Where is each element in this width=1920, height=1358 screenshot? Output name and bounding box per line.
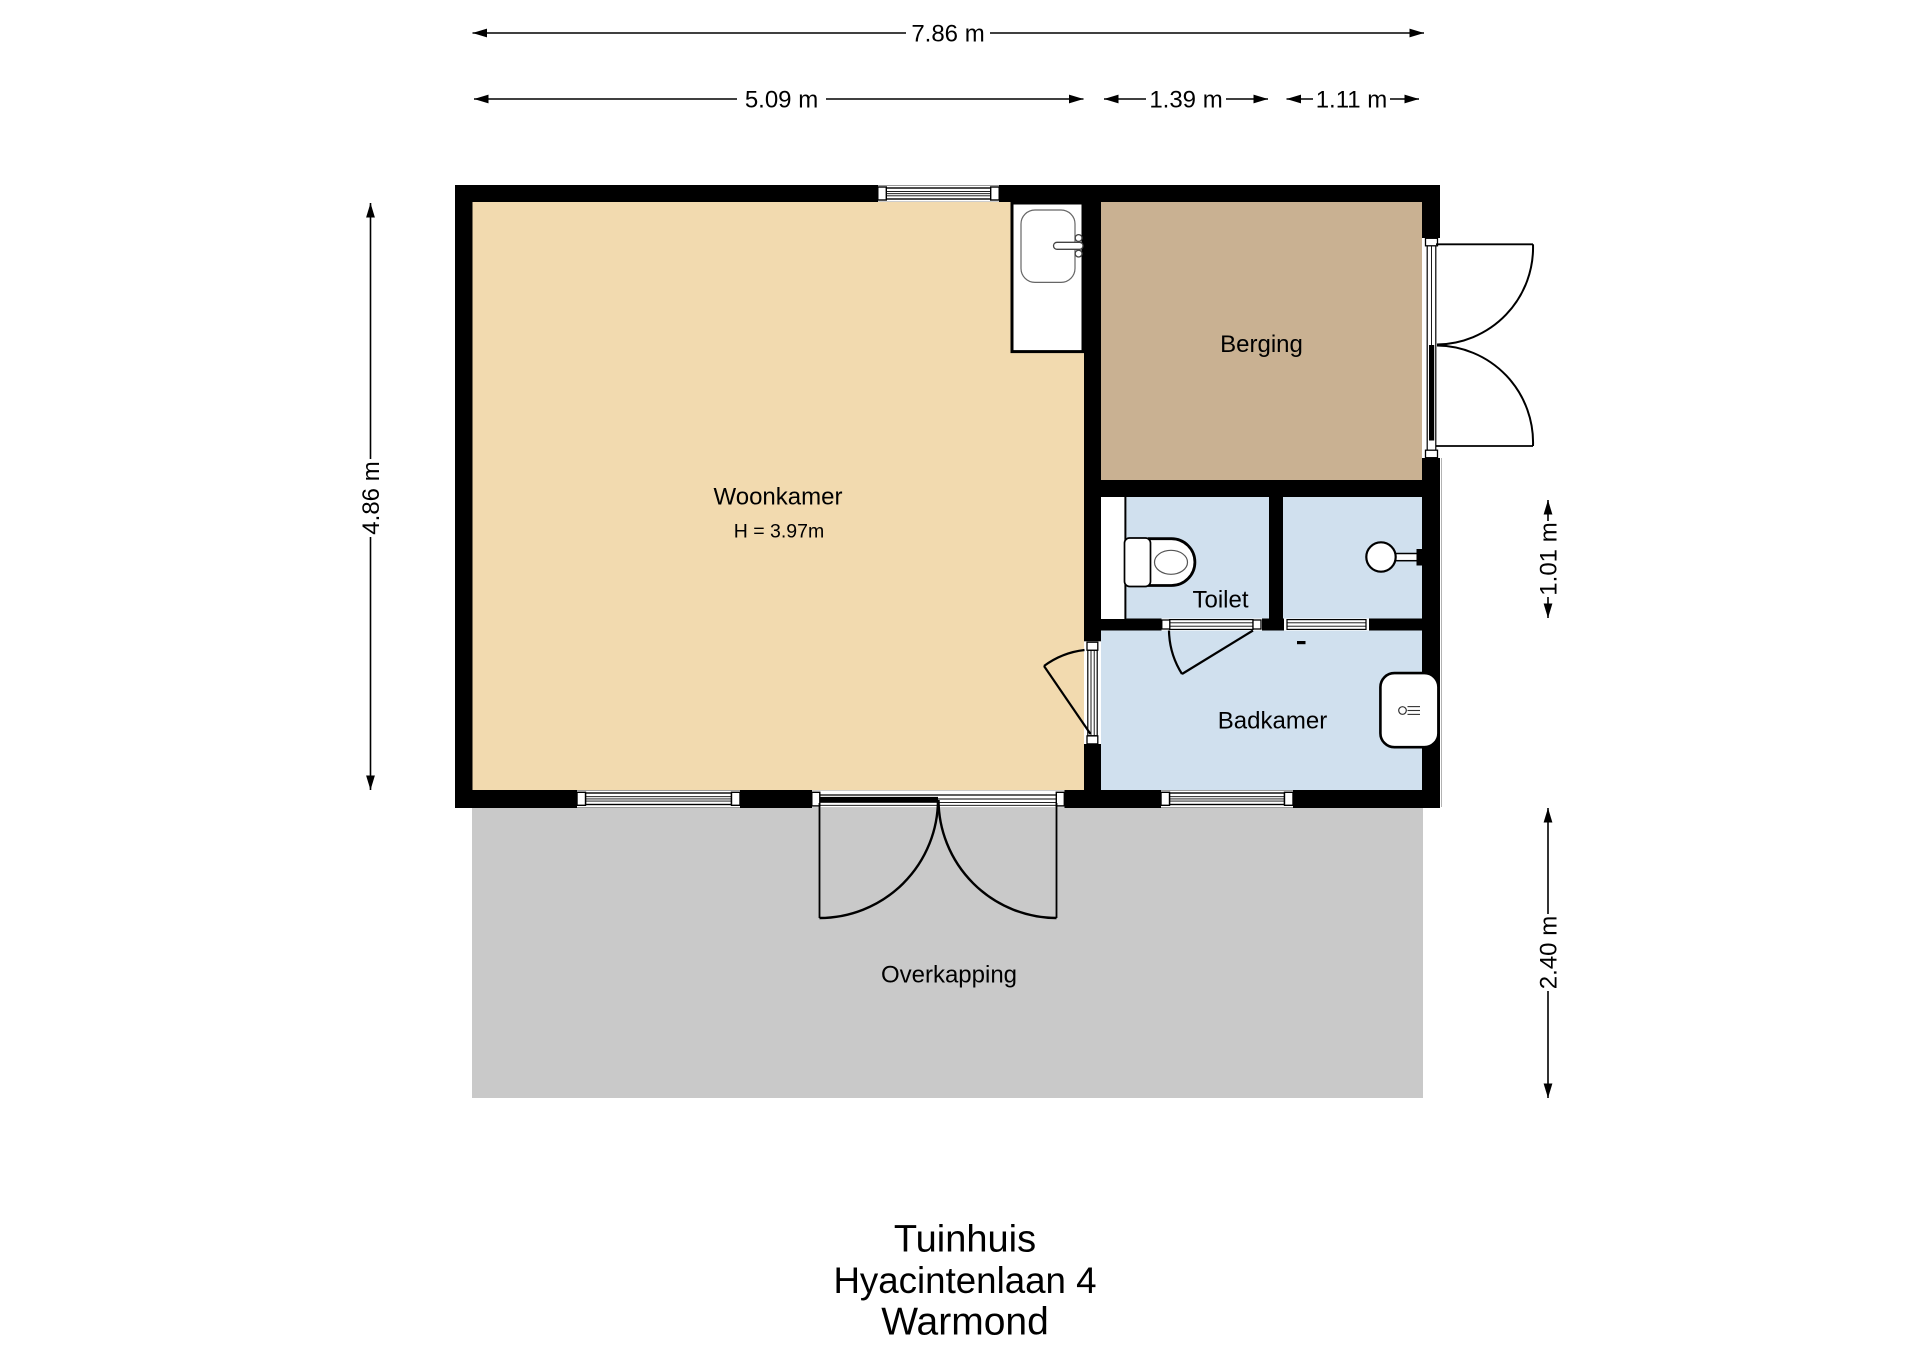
svg-text:4.86 m: 4.86 m [358, 461, 385, 534]
svg-text:Warmond: Warmond [881, 1301, 1049, 1344]
svg-text:1.11 m: 1.11 m [1316, 87, 1388, 114]
svg-text:Woonkamer: Woonkamer [714, 484, 843, 511]
svg-text:Toilet: Toilet [1192, 587, 1248, 614]
svg-text:Overkapping: Overkapping [881, 962, 1017, 989]
svg-text:1.39 m: 1.39 m [1149, 87, 1222, 114]
svg-text:Badkamer: Badkamer [1218, 708, 1327, 735]
svg-text:H = 3.97m: H = 3.97m [734, 521, 825, 543]
svg-text:7.86 m: 7.86 m [911, 21, 984, 48]
svg-text:1.01 m: 1.01 m [1536, 522, 1563, 595]
svg-text:Tuinhuis: Tuinhuis [894, 1219, 1036, 1261]
svg-text:Berging: Berging [1220, 331, 1303, 358]
svg-text:2.40 m: 2.40 m [1536, 916, 1563, 989]
svg-text:5.09 m: 5.09 m [745, 87, 818, 114]
svg-text:Hyacintenlaan 4: Hyacintenlaan 4 [833, 1260, 1096, 1301]
